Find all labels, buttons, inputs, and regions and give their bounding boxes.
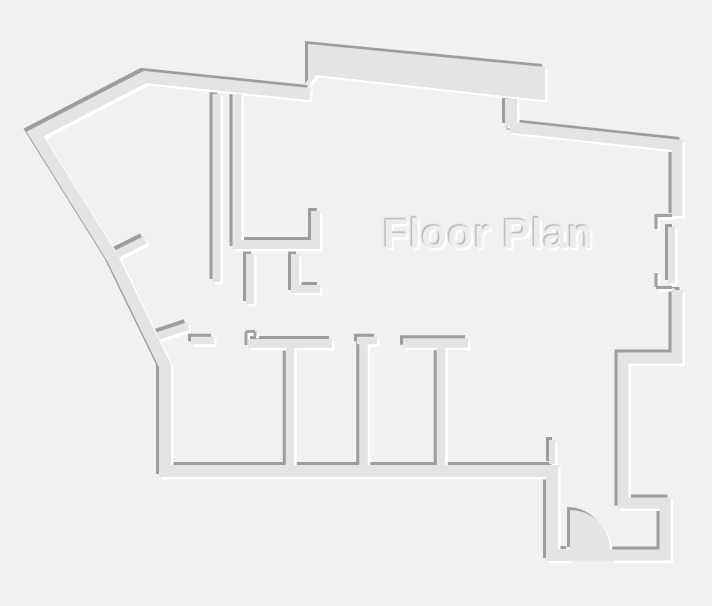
floor-plan-title: Floor Plan [383,210,593,257]
floor-plan-stage: Floor Plan [0,0,712,606]
floor-plan-drawing: Floor Plan [0,0,712,606]
